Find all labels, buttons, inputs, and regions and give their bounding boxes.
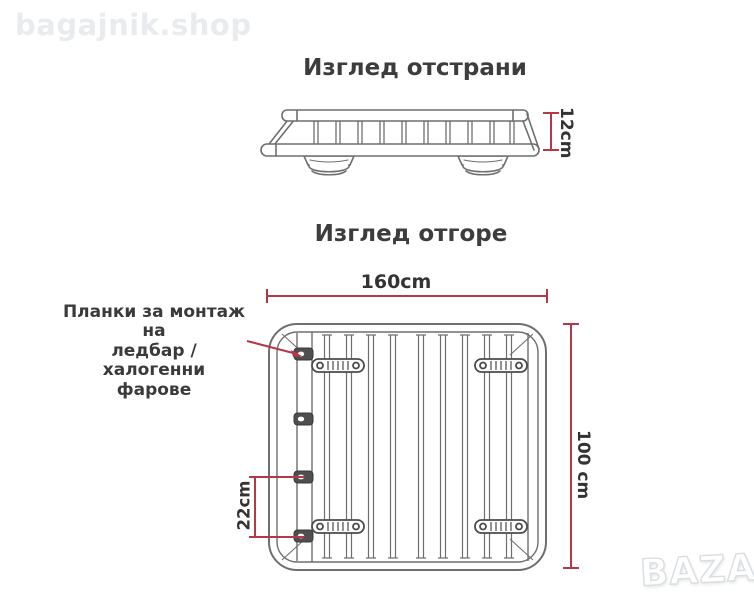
bracket-top-right — [475, 359, 527, 372]
mount-annotation-line-1: Планки за монтаж на — [58, 303, 250, 342]
tab-spacing-dimension-label: 22cm — [235, 474, 254, 538]
side-view-drawing — [261, 110, 539, 175]
side-struts — [314, 121, 514, 145]
bracket-top-left — [312, 359, 364, 372]
side-bottom-rail — [261, 144, 539, 156]
diagram-line-art — [0, 0, 754, 600]
top-view-drawing — [269, 324, 546, 570]
bazar-logo-watermark: BAZAR — [639, 544, 754, 595]
side-height-dimension-label: 12cm — [556, 107, 576, 158]
top-length-dimension-label: 100 cm — [573, 430, 593, 499]
top-width-dimension-label: 160cm — [346, 271, 446, 293]
side-mount-foot-right — [458, 156, 508, 175]
mount-annotation-line-3: фарове — [58, 381, 250, 400]
mount-annotation-line-2: ледбар / халогенни — [58, 342, 250, 381]
mount-annotation: Планки за монтаж на ледбар / халогенни ф… — [58, 303, 250, 400]
bracket-bottom-right — [475, 520, 527, 533]
side-mount-foot-left — [304, 156, 354, 175]
bracket-bottom-left — [312, 520, 364, 533]
